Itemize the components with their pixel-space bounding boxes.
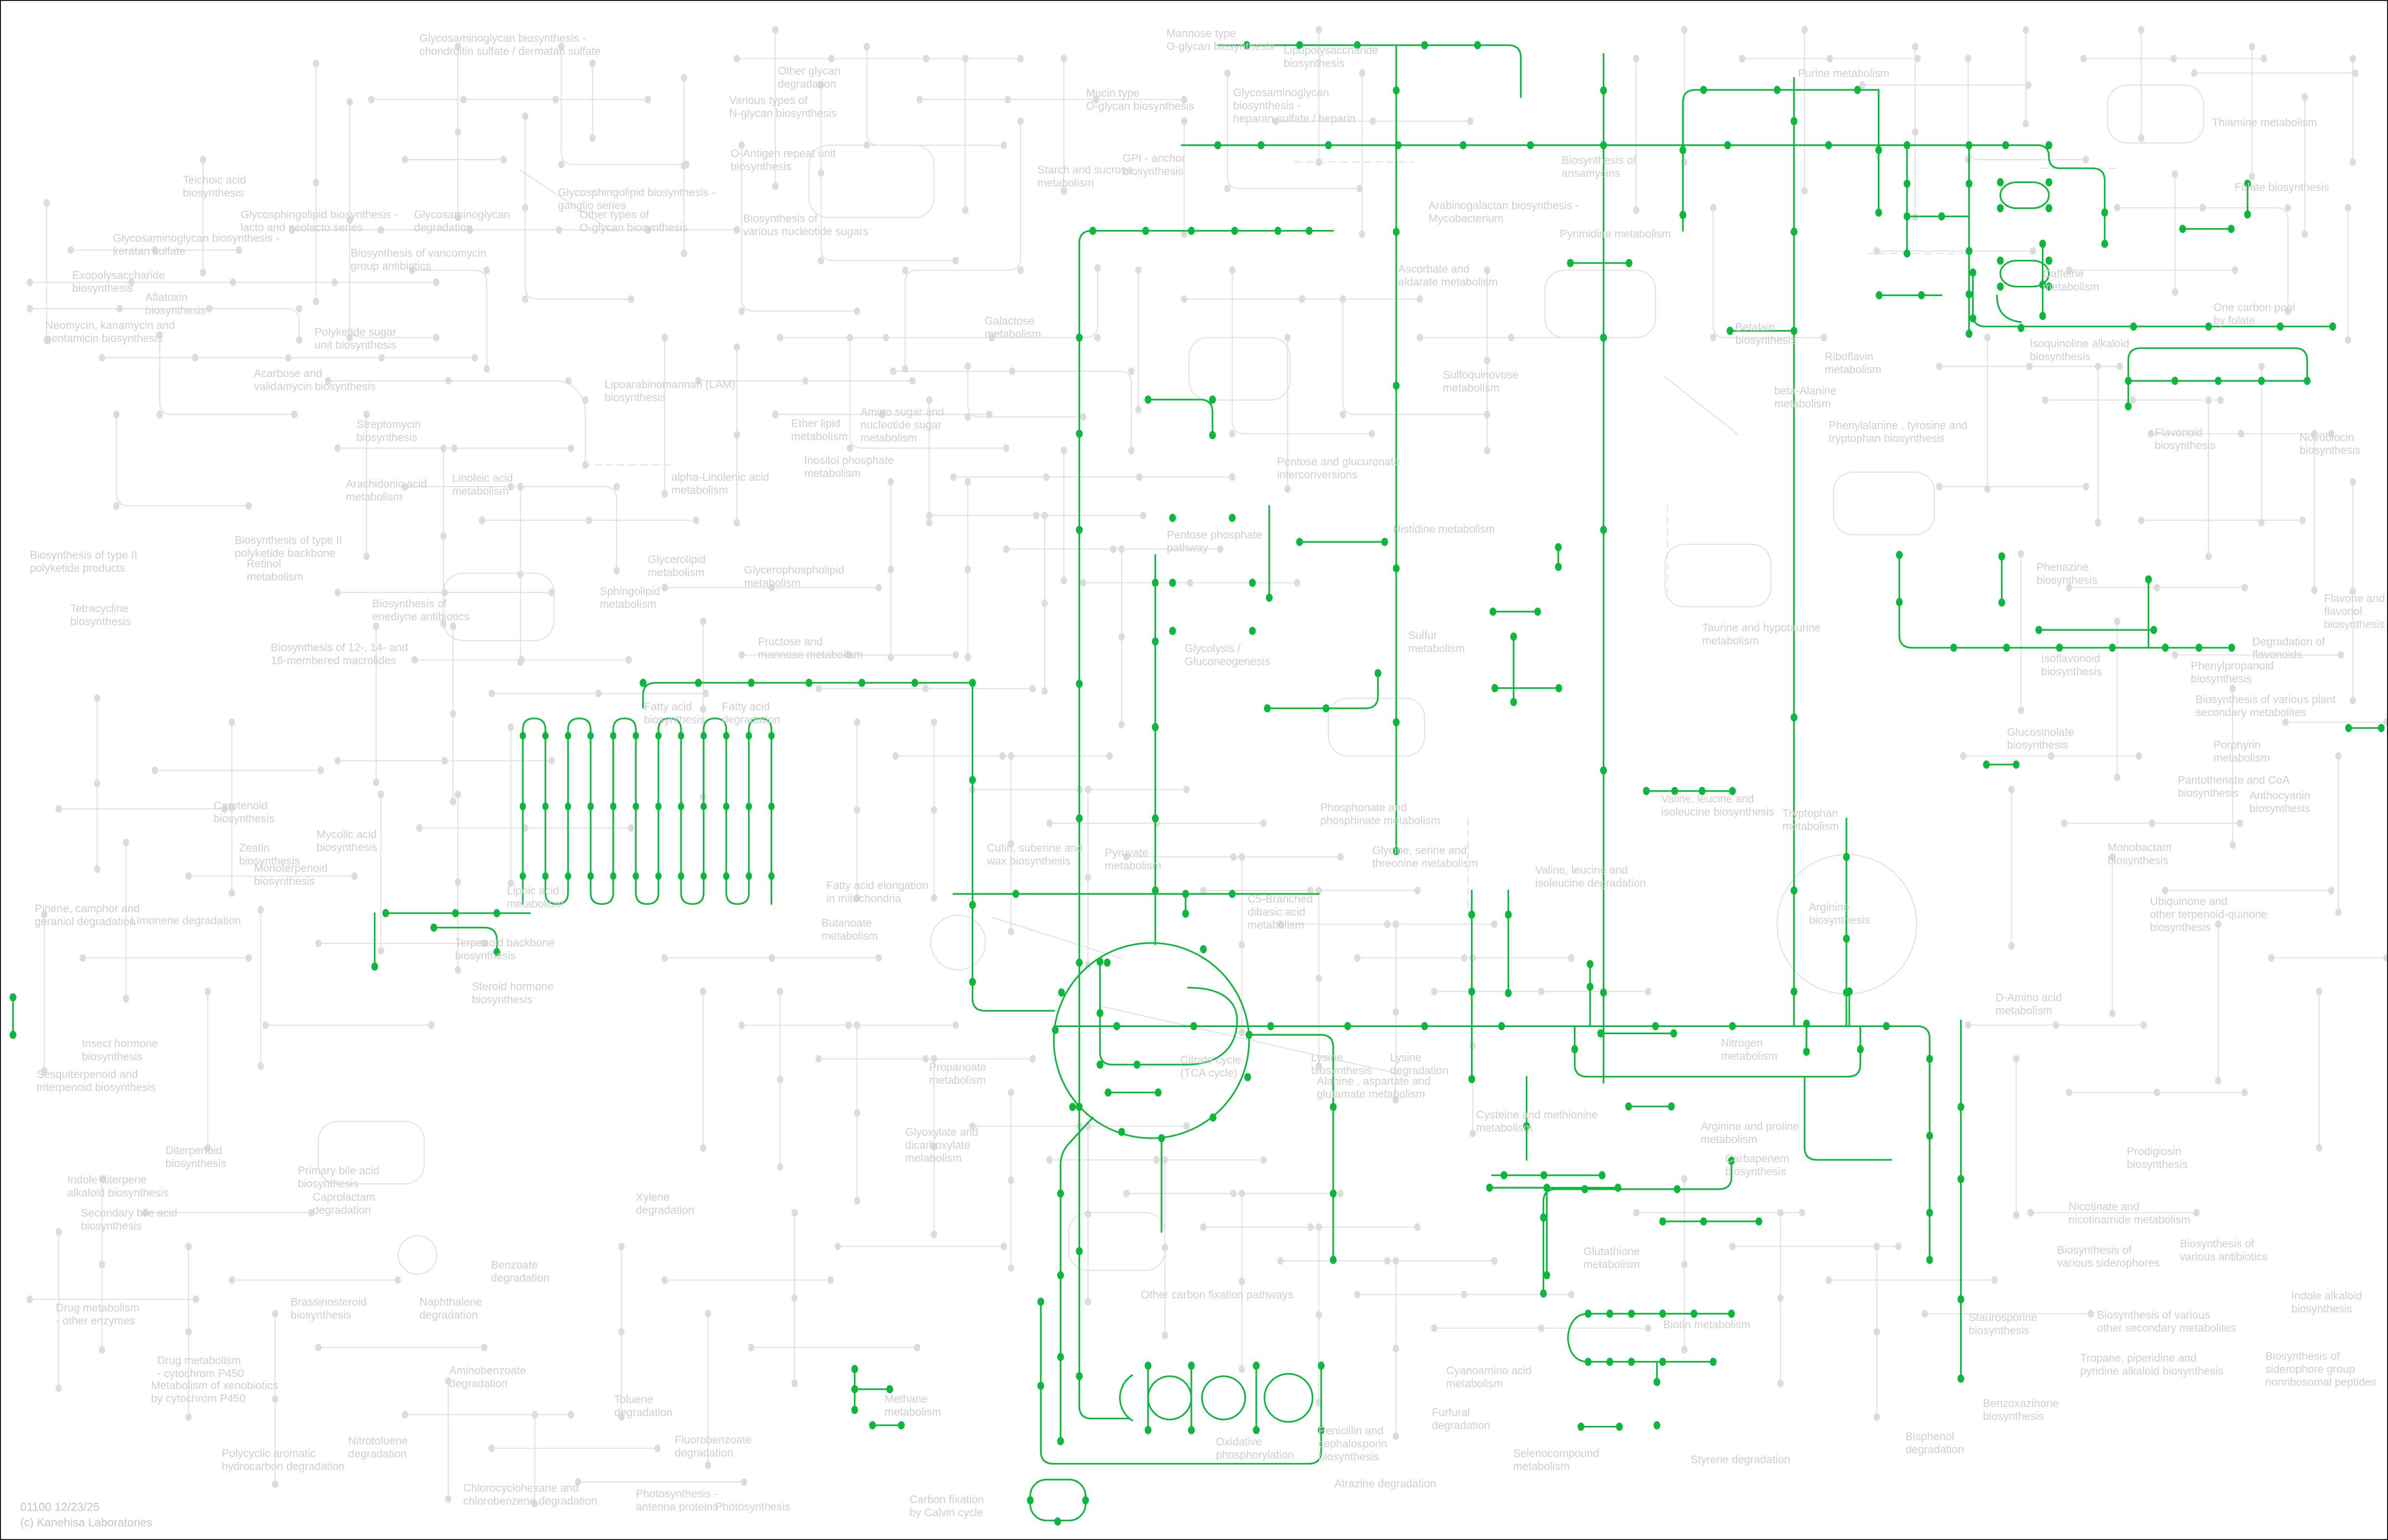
- highlighted-compound-node: [1846, 988, 1853, 996]
- compound-node: [741, 1478, 747, 1486]
- highlighted-compound-node: [1145, 396, 1151, 404]
- highlighted-compound-node: [768, 873, 774, 880]
- pathway-label-line: Polycyclic aromatic: [222, 1447, 316, 1460]
- highlighted-compound-node: [1997, 257, 2004, 265]
- pathway-label-line: metabolism: [1583, 1258, 1639, 1270]
- highlighted-compound-node: [1527, 141, 1534, 149]
- compound-node: [2259, 519, 2265, 526]
- highlighted-compound-node: [1653, 1421, 1660, 1429]
- compound-node: [1491, 1257, 1497, 1265]
- compound-node: [522, 113, 529, 120]
- compound-node: [1229, 430, 1235, 437]
- highlighted-compound-node: [1600, 334, 1607, 342]
- pathway-label-line: Sulfoquinovose: [1443, 368, 1519, 381]
- highlighted-compound-node: [1966, 180, 1973, 188]
- pathway-label-line: chondroitin sulfate / dermatan sulfate: [419, 45, 601, 57]
- highlighted-compound-node: [1510, 698, 1517, 706]
- metabolic-pathway-map: Glycosaminoglycan biosynthesis -chondroi…: [0, 0, 2388, 1540]
- compound-node: [2114, 774, 2120, 782]
- highlighted-compound-node: [2329, 322, 2336, 331]
- compound-node: [734, 431, 740, 439]
- pathway-label: Glycosaminoglycan biosynthesis -chondroi…: [419, 32, 601, 57]
- compound-node: [200, 156, 206, 164]
- compound-node: [185, 1328, 192, 1335]
- compound-node: [847, 334, 853, 341]
- highlighted-compound-node: [1997, 282, 2004, 291]
- pathway-label: Atrazine degradation: [1334, 1477, 1436, 1489]
- highlighted-compound-node: [1791, 886, 1797, 895]
- pathway-label-line: biosynthesis: [2178, 787, 2238, 799]
- highlighted-compound-node: [1069, 1103, 1076, 1111]
- compound-node: [1467, 117, 1473, 125]
- compound-node: [1922, 1310, 1928, 1318]
- compound-node: [628, 295, 634, 303]
- pathway-label-line: Furfural: [1432, 1406, 1470, 1419]
- compound-node: [1001, 1243, 1007, 1250]
- compound-node: [1778, 1294, 1784, 1302]
- compound-node: [1491, 920, 1497, 928]
- compound-node: [1895, 1243, 1901, 1250]
- pathway-label-line: Biosynthesis of: [1562, 154, 1636, 167]
- compound-node: [2299, 516, 2306, 524]
- compound-node: [661, 954, 668, 962]
- compound-node: [272, 1481, 278, 1489]
- pathway-label-line: Arabinogalactan biosynthesis -: [1429, 199, 1579, 212]
- pathway-label-line: Glycosphingolipid biosynthesis -: [558, 186, 715, 199]
- highlighted-compound-node: [1104, 959, 1110, 967]
- compound-node: [734, 55, 740, 63]
- highlighted-compound-node: [632, 873, 639, 880]
- compound-node: [451, 444, 457, 452]
- pathway-label-line: metabolism: [2213, 752, 2270, 764]
- highlighted-compound-node: [1966, 247, 1973, 255]
- compound-node: [1085, 1210, 1091, 1218]
- pathway-label-line: beta-Alanine: [1774, 384, 1836, 397]
- compound-node: [2345, 336, 2351, 344]
- compound-node: [428, 1021, 435, 1029]
- compound-node: [2249, 173, 2255, 180]
- highlighted-compound-node: [2046, 257, 2052, 265]
- highlighted-compound-node: [806, 679, 813, 687]
- pathway-label-line: degradation: [1906, 1443, 1964, 1456]
- pathway-label-line: Penicillin and: [1318, 1424, 1383, 1437]
- compound-node: [1965, 55, 1971, 63]
- highlighted-compound-node: [2244, 210, 2251, 218]
- pathway-label-line: Polyketide sugar: [314, 325, 396, 338]
- compound-node: [876, 954, 882, 962]
- compound-node: [734, 343, 740, 351]
- compound-node: [1042, 599, 1048, 607]
- pathway-label-line: biosynthesis: [2155, 439, 2215, 451]
- highlighted-compound-node: [1375, 669, 1381, 677]
- compound-node: [1568, 1291, 1575, 1298]
- pathway-label-line: Diterpenoid: [166, 1144, 222, 1156]
- pathway-label-line: biosynthesis: [2291, 1302, 2352, 1315]
- highlighted-compound-node: [10, 993, 16, 1001]
- pathway-label-line: biosynthesis: [316, 841, 377, 854]
- pathway-label-line: Biosynthesis of various: [2097, 1309, 2210, 1321]
- highlighted-compound-node: [1679, 146, 1686, 154]
- compound-node: [738, 651, 745, 659]
- highlighted-compound-node: [1729, 1022, 1736, 1030]
- compound-node: [236, 246, 242, 254]
- highlighted-compound-node: [1076, 1247, 1083, 1255]
- compound-node: [661, 1276, 668, 1284]
- highlighted-compound-node: [852, 1365, 858, 1373]
- highlighted-compound-node: [898, 1421, 904, 1429]
- pathway-label-line: Inositol phosphate: [804, 454, 894, 466]
- highlighted-compound-node: [1600, 766, 1607, 774]
- compound-node: [313, 60, 319, 67]
- compound-node: [1110, 545, 1116, 553]
- highlighted-compound-node: [1679, 211, 1686, 219]
- pathway-label-line: Arginine and proline: [1701, 1120, 1799, 1132]
- compound-node: [2083, 483, 2089, 490]
- pathway-label-line: biosynthesis: [1809, 913, 1870, 926]
- highlighted-compound-node: [430, 924, 437, 932]
- compound-node: [926, 519, 932, 526]
- highlighted-compound-node: [1540, 1289, 1547, 1297]
- pathway-label-line: Pyruvate: [1105, 847, 1149, 859]
- compound-node: [416, 824, 423, 832]
- compound-node: [472, 354, 478, 361]
- compound-node: [1645, 988, 1652, 995]
- highlighted-compound-node: [1543, 1271, 1550, 1279]
- pathway-label-line: Galactose: [984, 314, 1034, 327]
- highlighted-compound-node: [1089, 227, 1096, 235]
- pathway-label-line: (TCA cycle): [1180, 1066, 1238, 1079]
- compound-node: [2232, 267, 2238, 274]
- pathway-label-line: degradation: [614, 1406, 672, 1419]
- pathway-label-line: GPI - anchor: [1123, 152, 1186, 165]
- compound-node: [313, 179, 319, 186]
- compound-node: [791, 1209, 798, 1217]
- pathway-label-line: Valine, leucine and: [1661, 793, 1754, 805]
- compound-node: [1568, 954, 1575, 962]
- highlighted-compound-node: [695, 679, 702, 687]
- pathway-label-line: by Calvin cycle: [909, 1506, 983, 1518]
- pathway-label-line: Flavone and: [2324, 592, 2385, 604]
- pathway-label: Glutathionemetabolism: [1583, 1245, 1639, 1270]
- pathway-label-line: by cytochrom P450: [151, 1392, 246, 1405]
- compound-node: [440, 532, 447, 540]
- compound-node: [489, 690, 495, 697]
- compound-node: [2027, 1209, 2034, 1217]
- compound-node: [661, 584, 668, 591]
- compound-node: [1337, 853, 1343, 861]
- highlighted-compound-node: [1670, 1029, 1677, 1038]
- compound-node: [1260, 1156, 1266, 1164]
- pathway-label: Glycerolipidmetabolism: [648, 553, 706, 578]
- highlighted-compound-node: [2215, 377, 2221, 385]
- highlighted-compound-node: [1082, 1496, 1089, 1504]
- compound-node: [230, 279, 236, 286]
- highlighted-compound-node: [1966, 141, 1973, 149]
- highlighted-compound-node: [1756, 1217, 1762, 1225]
- compound-node: [1936, 362, 1942, 370]
- compound-node: [1873, 1243, 1880, 1250]
- highlighted-compound-node: [1997, 178, 2004, 186]
- compound-node: [2030, 247, 2036, 255]
- compound-node: [94, 694, 100, 702]
- compound-node: [618, 1328, 624, 1335]
- pathway-label: Teichoic acidbiosynthesis: [183, 174, 246, 199]
- compound-node: [705, 1310, 711, 1318]
- highlighted-compound-node: [1393, 86, 1400, 94]
- highlighted-compound-node: [1318, 1361, 1325, 1370]
- pathway-label-line: metabolism: [744, 577, 800, 589]
- compound-node: [2172, 651, 2178, 659]
- pathway-label: beta-Alaninemetabolism: [1774, 384, 1836, 410]
- compound-node: [590, 60, 596, 67]
- compound-node: [1825, 1276, 1832, 1284]
- highlighted-compound-node: [2228, 643, 2235, 652]
- compound-node: [518, 656, 525, 664]
- highlighted-compound-node: [1983, 760, 1990, 769]
- compound-node: [2311, 586, 2318, 594]
- pathway-label-line: metabolism: [984, 327, 1041, 340]
- compound-node: [654, 1445, 660, 1452]
- highlighted-compound-node: [1076, 1103, 1083, 1111]
- pathway-label-line: pathway: [1167, 541, 1208, 554]
- highlighted-compound-node: [610, 873, 616, 880]
- compound-node: [864, 141, 870, 149]
- highlighted-compound-node: [1264, 704, 1271, 712]
- pathway-label-line: Naphthalene: [419, 1296, 482, 1308]
- compound-node: [1095, 264, 1101, 272]
- pathway-label: Other carbon fixation pathways: [1141, 1288, 1293, 1301]
- highlighted-compound-node: [1381, 538, 1388, 546]
- compound-node: [315, 939, 322, 947]
- compound-node: [1187, 579, 1193, 587]
- compound-node: [1316, 1223, 1322, 1231]
- highlighted-compound-node: [520, 803, 526, 810]
- compound-node: [890, 367, 896, 375]
- pathway-label-line: degradation: [312, 1204, 371, 1216]
- compound-node: [2048, 752, 2054, 760]
- compound-node: [2042, 396, 2048, 404]
- compound-node: [864, 43, 870, 51]
- pathway-label: Cutin, suberine andwax biosynthesis: [986, 842, 1083, 867]
- pathway-label-line: Secondary bile acid: [81, 1206, 177, 1219]
- highlighted-compound-node: [1970, 314, 1976, 322]
- compound-node: [854, 719, 860, 726]
- pathway-label: Thiamine metabolism: [2212, 116, 2317, 128]
- compound-node: [1200, 1223, 1206, 1231]
- compound-node: [1681, 1260, 1688, 1268]
- highlighted-compound-node: [1606, 1358, 1613, 1366]
- compound-node: [2215, 1077, 2221, 1084]
- pathway-label: Styrene degradation: [1691, 1453, 1790, 1466]
- compound-node: [378, 791, 384, 798]
- compound-node: [2206, 396, 2212, 404]
- compound-node: [1417, 334, 1423, 341]
- pathway-label-line: metabolism: [600, 598, 656, 610]
- pathway-label-line: O-glycan biosynthesis: [1086, 100, 1194, 112]
- pathway-label-line: Brassinosteroid: [291, 1296, 367, 1308]
- compound-node: [1239, 941, 1245, 949]
- compound-node: [1307, 1223, 1314, 1231]
- highlighted-compound-node: [1505, 989, 1511, 997]
- pathway-label-line: Benzoxazinone: [1983, 1397, 2059, 1410]
- compound-node: [1061, 577, 1067, 584]
- pathway-label-line: Starch and sucrose: [1037, 164, 1133, 176]
- compound-node: [1393, 1008, 1399, 1016]
- highlighted-compound-node: [1253, 1426, 1260, 1434]
- pathway-label-line: interconversions: [1277, 468, 1357, 481]
- compound-node: [1393, 1433, 1399, 1440]
- compound-node: [433, 279, 439, 286]
- highlighted-compound-node: [1188, 1361, 1195, 1370]
- compound-node: [43, 199, 50, 207]
- highlighted-compound-node: [969, 978, 976, 986]
- compound-node: [892, 752, 899, 760]
- compound-node: [590, 134, 596, 142]
- pathway-label-line: Degradation of: [2252, 635, 2325, 648]
- highlighted-compound-node: [1469, 911, 1475, 919]
- compound-node: [335, 757, 341, 765]
- compound-node: [2061, 820, 2067, 827]
- compound-node: [296, 305, 302, 312]
- highlighted-compound-node: [1118, 1128, 1125, 1136]
- pathway-label-line: biosynthesis: [2007, 739, 2068, 751]
- compound-node: [2259, 362, 2265, 370]
- compound-node: [854, 1109, 860, 1117]
- compound-node: [854, 806, 860, 814]
- pathway-label-line: metabolism: [1476, 1121, 1533, 1134]
- highlighted-compound-node: [1152, 637, 1159, 645]
- pathway-label-line: Insect hormone: [82, 1037, 158, 1050]
- highlighted-compound-node: [1275, 227, 1281, 235]
- pathway-label: Sphingolipidmetabolism: [600, 585, 660, 610]
- highlighted-compound-node: [911, 679, 918, 687]
- compound-node: [373, 622, 379, 630]
- pathway-label-line: Streptomycin: [356, 418, 421, 430]
- highlighted-compound-node: [1246, 1031, 1252, 1039]
- highlighted-compound-node: [746, 873, 752, 880]
- pathway-label: Diterpenoidbiosynthesis: [166, 1144, 226, 1169]
- compound-node: [802, 377, 809, 385]
- pathway-label-line: Porphyrin: [2213, 739, 2260, 751]
- pathway-label-line: Gluconeogenesis: [1185, 655, 1270, 667]
- pathway-label-line: chlorobenzene degradation: [463, 1494, 597, 1507]
- compound-node: [1393, 1345, 1399, 1352]
- highlighted-compound-node: [1728, 1309, 1735, 1318]
- highlighted-compound-node: [2046, 204, 2052, 212]
- pathway-label-line: biosynthesis: [2191, 672, 2251, 685]
- highlighted-compound-node: [852, 1406, 858, 1414]
- compound-node: [152, 767, 158, 774]
- pathway-label-line: Photosynthesis: [715, 1500, 790, 1513]
- compound-node: [1107, 752, 1113, 760]
- pathway-label-line: metabolism: [929, 1074, 985, 1086]
- compound-node: [953, 257, 959, 265]
- compound-node: [2218, 396, 2224, 404]
- highlighted-compound-node: [2205, 322, 2212, 331]
- pathway-label-line: Fatty acid: [644, 700, 692, 713]
- highlighted-compound-node: [1113, 1022, 1120, 1030]
- compound-node: [2023, 26, 2029, 34]
- compound-node: [1294, 579, 1300, 587]
- compound-node: [681, 162, 687, 169]
- pathway-label-line: metabolism: [885, 1406, 941, 1418]
- highlighted-compound-node: [678, 803, 684, 810]
- compound-node: [1965, 1021, 1971, 1029]
- compound-node: [2328, 887, 2335, 895]
- compound-node: [2018, 550, 2024, 558]
- compound-node: [965, 413, 971, 421]
- pathway-label: Biosynthesis of type IIpolyketide produc…: [30, 549, 137, 574]
- pathway-label-line: Linoleic acid: [452, 472, 513, 484]
- pathway-label-line: metabolism: [1037, 177, 1094, 189]
- highlighted-compound-node: [10, 1031, 16, 1039]
- compound-node: [2230, 685, 2236, 693]
- compound-node: [902, 365, 908, 372]
- highlighted-compound-node: [1182, 890, 1189, 898]
- compound-node: [962, 206, 968, 214]
- pathway-label-line: Various types of: [729, 94, 808, 106]
- compound-node: [2242, 584, 2248, 591]
- compound-node: [2302, 231, 2308, 238]
- pathway-label-line: metabolism: [507, 897, 563, 910]
- pathway-label-line: Pinene, camphor and: [35, 902, 140, 914]
- compound-node: [291, 411, 297, 418]
- compound-node: [738, 307, 745, 315]
- compound-node: [455, 966, 461, 974]
- pathway-label-line: Biosynthesis of: [372, 597, 447, 610]
- compound-node: [777, 334, 783, 341]
- pathway-label-line: O-glycan biosynthesis: [580, 221, 688, 234]
- compound-node: [1368, 430, 1375, 437]
- compound-node: [1239, 1277, 1245, 1285]
- compound-node: [815, 1055, 822, 1063]
- compound-node: [460, 96, 466, 103]
- highlighted-compound-node: [2013, 760, 2020, 769]
- compound-node: [2206, 552, 2212, 560]
- compound-node: [2008, 786, 2014, 794]
- highlighted-compound-node: [1209, 396, 1216, 404]
- compound-node: [1224, 185, 1230, 192]
- highlighted-compound-node: [700, 803, 707, 810]
- compound-node: [1003, 545, 1009, 553]
- highlighted-compound-node: [1058, 988, 1065, 997]
- pathway-label-line: Betalain: [1735, 321, 1775, 333]
- compound-node: [818, 169, 824, 177]
- highlighted-compound-node: [1249, 627, 1256, 635]
- compound-node: [94, 780, 100, 787]
- compound-node: [828, 55, 835, 63]
- compound-node: [455, 878, 461, 886]
- highlighted-compound-node: [2125, 402, 2131, 411]
- highlighted-compound-node: [2018, 324, 2025, 332]
- highlighted-compound-node: [1076, 430, 1083, 438]
- compound-node: [2088, 1310, 2094, 1318]
- highlighted-compound-node: [1626, 259, 1632, 267]
- pathway-label: Pyrimidine metabolism: [1560, 228, 1671, 240]
- compound-node: [262, 1021, 269, 1029]
- pathway-label: Folate biosynthesis: [2234, 181, 2329, 193]
- compound-node: [625, 656, 632, 664]
- pathway-label-line: Tropane, piperidine and: [2080, 1352, 2197, 1364]
- pathway-label-line: metabolism: [905, 1152, 961, 1164]
- compound-node: [1431, 988, 1437, 995]
- highlighted-compound-node: [1659, 1309, 1666, 1318]
- highlighted-compound-node: [1134, 1061, 1140, 1069]
- compound-node: [1801, 26, 1807, 34]
- highlighted-compound-node: [1958, 1103, 1964, 1111]
- compound-node: [1008, 1177, 1014, 1184]
- compound-node: [378, 226, 384, 234]
